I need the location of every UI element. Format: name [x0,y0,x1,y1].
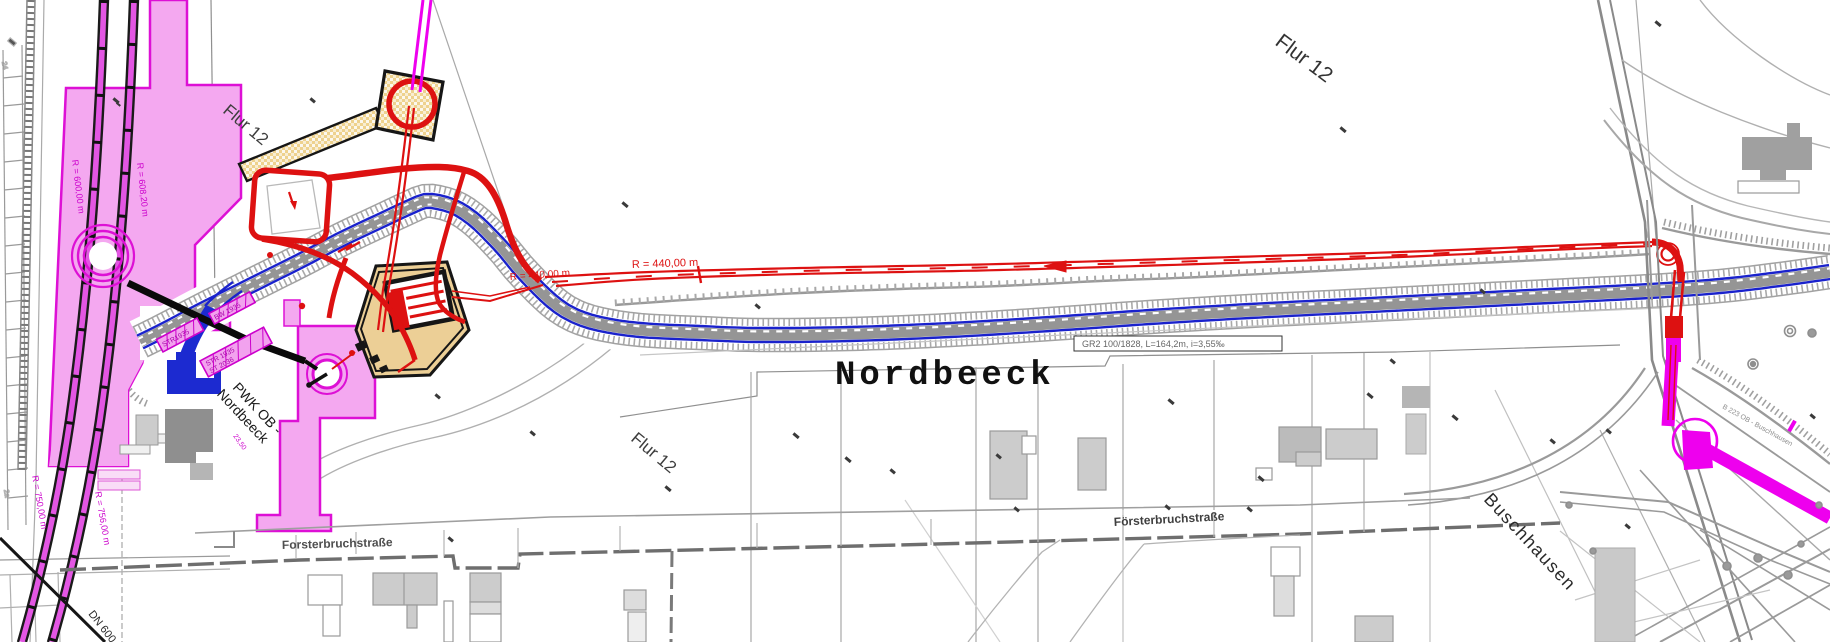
svg-text:24: 24 [0,61,8,70]
svg-text:2a: 2a [2,489,10,498]
svg-text:Nordbeeck: Nordbeeck [835,357,1055,395]
svg-text:GR2 100/1828, L=164,2m, i=3,55: GR2 100/1828, L=164,2m, i=3,55‰ [1082,339,1225,349]
svg-text:R = 440,00 m: R = 440,00 m [632,257,699,271]
svg-text:Forsterbruchstraße: Forsterbruchstraße [282,535,393,552]
